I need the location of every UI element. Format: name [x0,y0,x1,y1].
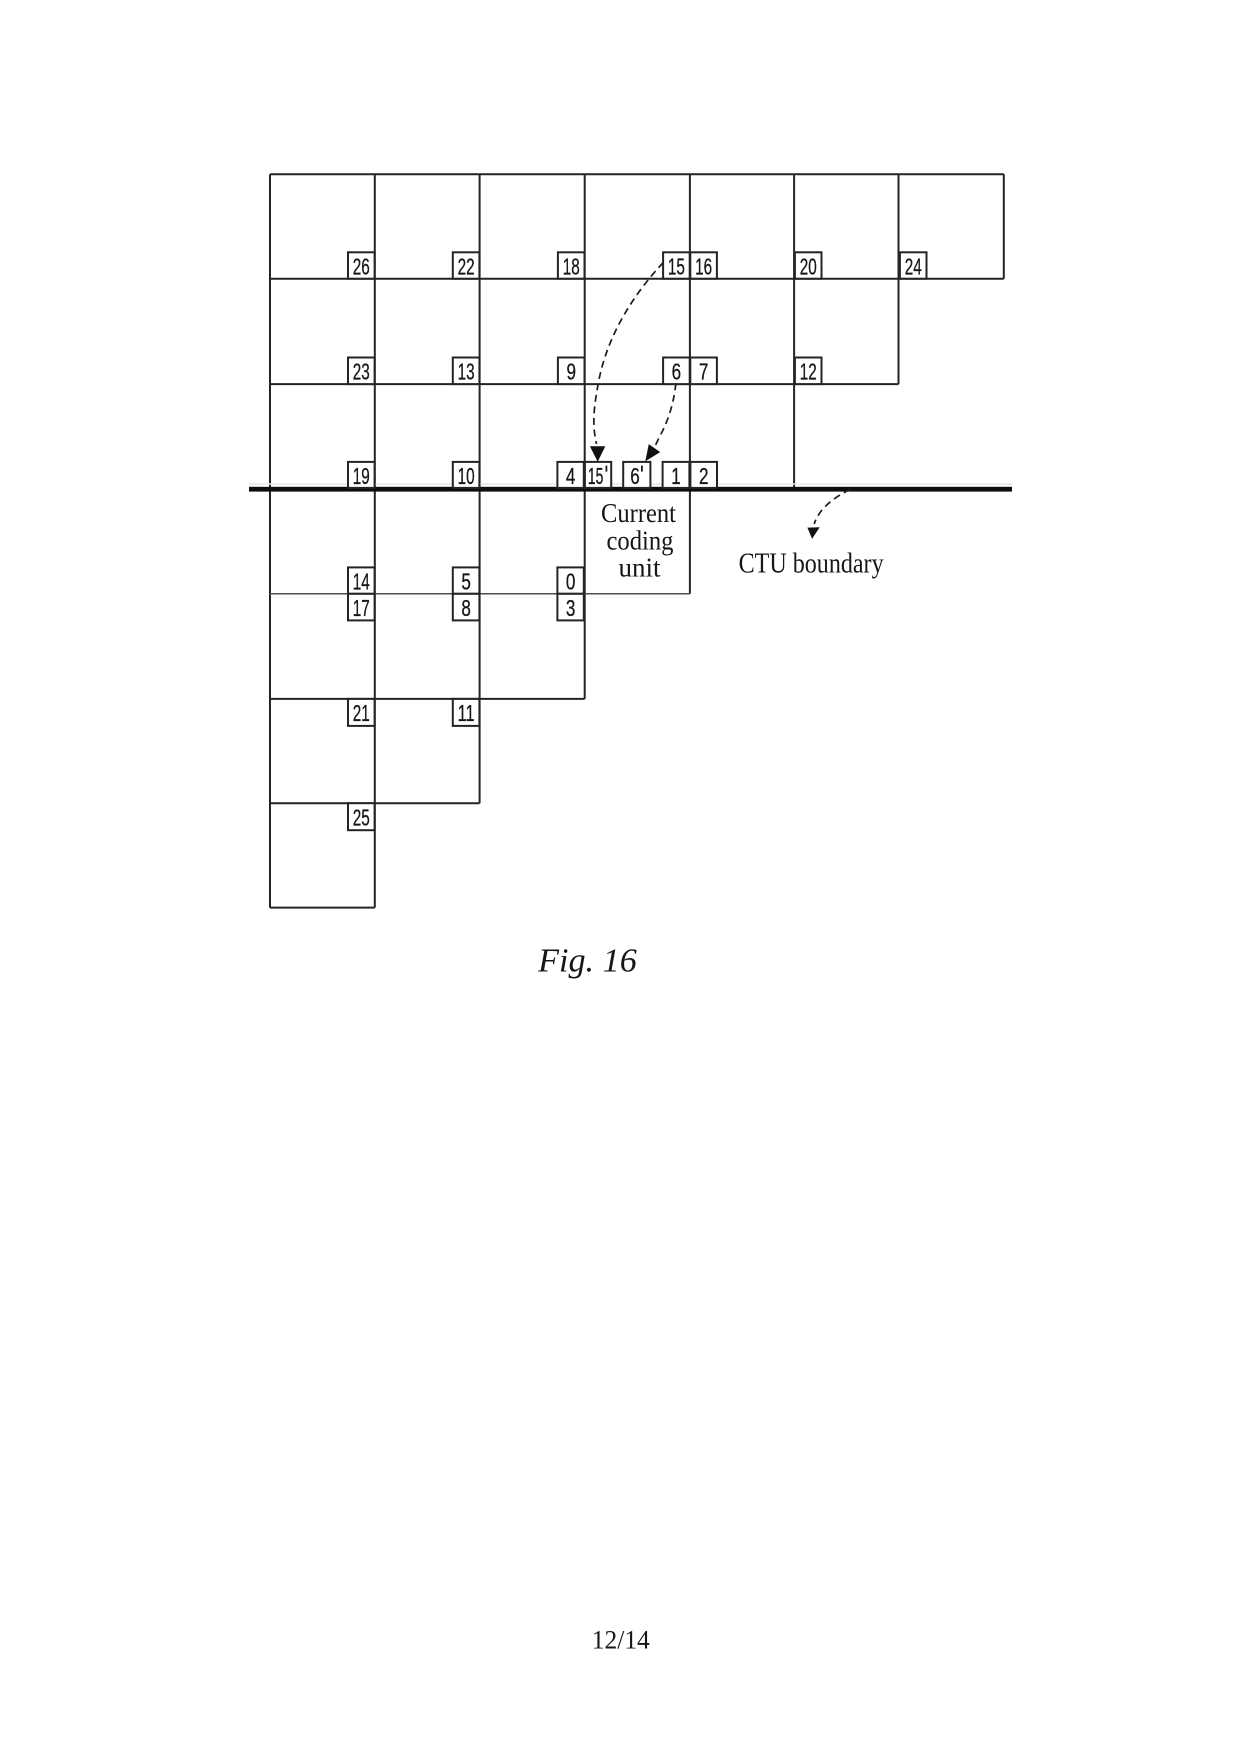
svg-text:12: 12 [800,359,817,385]
svg-text:1: 1 [671,463,681,489]
svg-text:8: 8 [461,595,471,621]
svg-text:2: 2 [699,463,709,489]
svg-text:3: 3 [566,595,576,621]
svg-text:22: 22 [458,253,475,279]
svg-text:Current: Current [601,498,676,528]
svg-text:25: 25 [353,804,370,830]
svg-text:unit: unit [618,553,661,583]
svg-text:CTU boundary: CTU boundary [739,548,885,579]
svg-text:24: 24 [905,253,922,279]
svg-text:5: 5 [461,568,471,594]
svg-text:21: 21 [353,700,370,726]
svg-text:7: 7 [699,359,709,385]
svg-text:18: 18 [563,253,580,279]
svg-text:0: 0 [566,568,576,594]
svg-text:4: 4 [566,463,576,489]
svg-text:16: 16 [695,253,712,279]
svg-text:14: 14 [353,568,370,594]
svg-text:15: 15 [668,253,685,279]
svg-text:coding: coding [607,526,674,556]
svg-text:17: 17 [353,595,370,621]
svg-text:11: 11 [458,700,475,726]
svg-text:13: 13 [458,359,475,385]
svg-text:23: 23 [353,359,370,385]
svg-text:19: 19 [353,463,370,489]
svg-text:Fig. 16: Fig. 16 [537,942,637,979]
svg-text:10: 10 [458,463,475,489]
svg-text:6: 6 [630,463,640,489]
svg-text:6: 6 [672,359,682,385]
svg-text:15: 15 [588,463,604,489]
svg-text:12/14: 12/14 [592,1624,650,1654]
svg-text:26: 26 [353,253,370,279]
svg-text:9: 9 [566,359,576,385]
svg-text:20: 20 [800,253,817,279]
